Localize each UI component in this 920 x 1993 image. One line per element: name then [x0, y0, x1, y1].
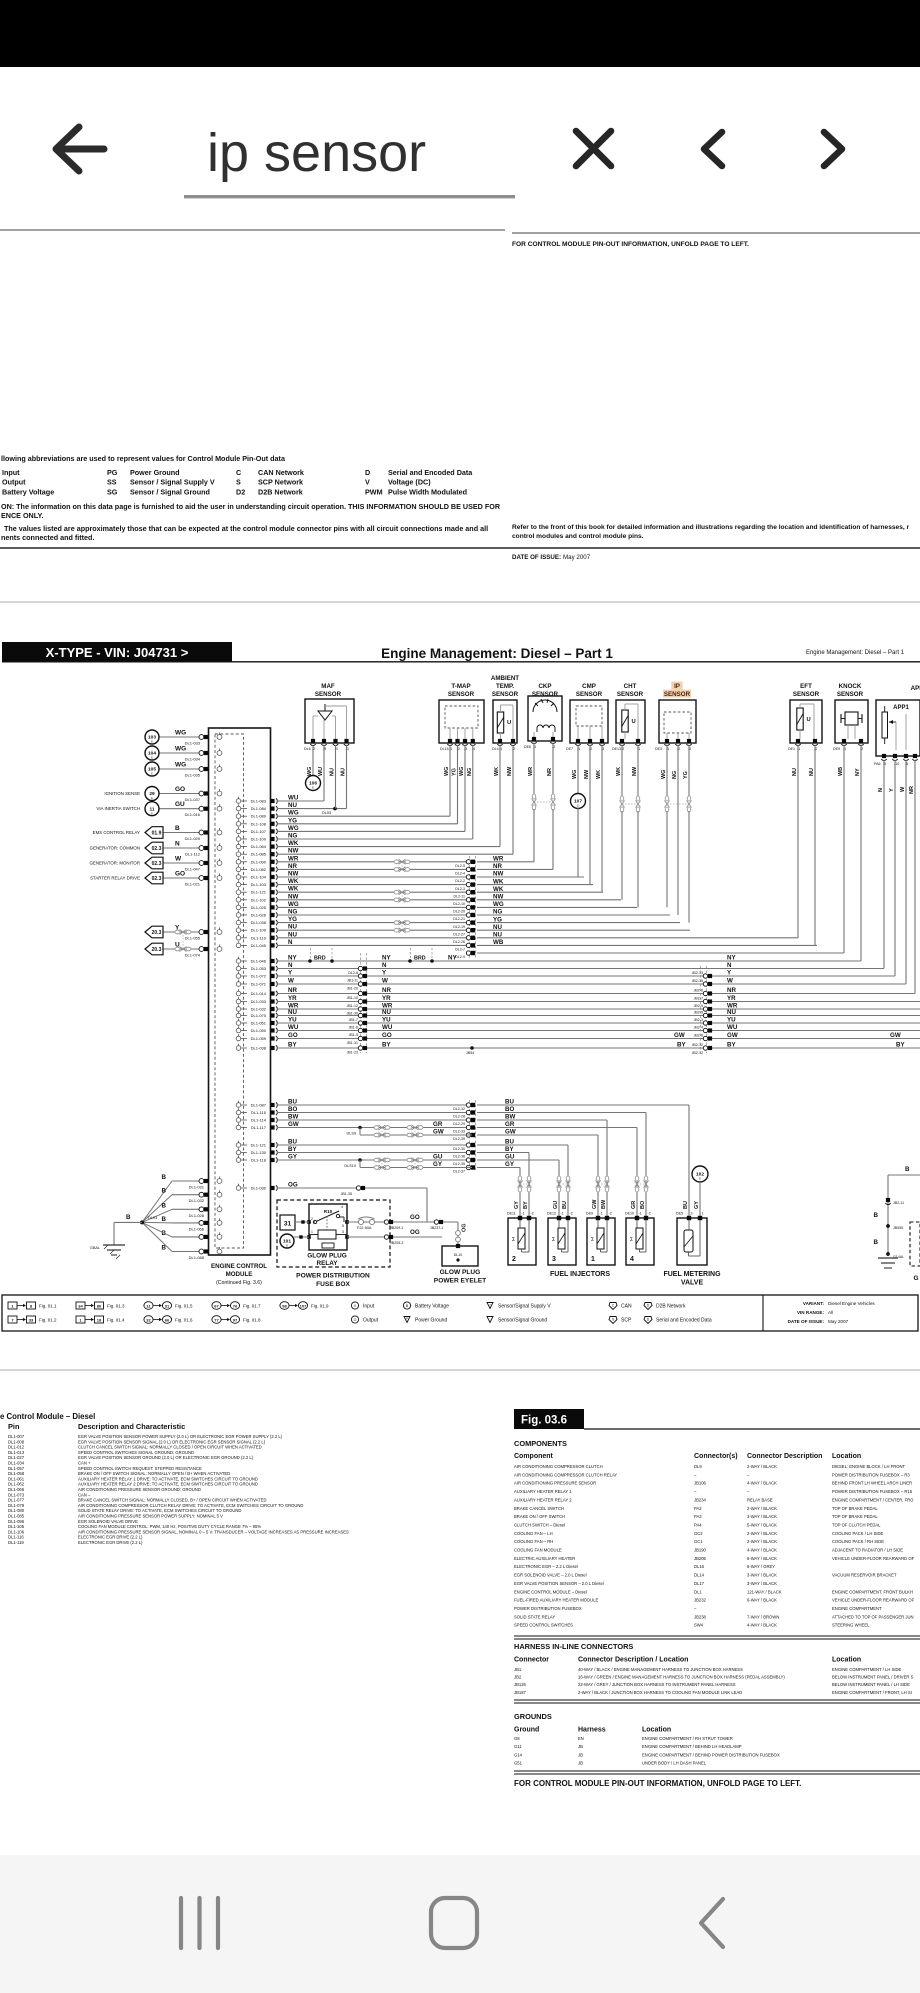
- svg-text:Y: Y: [889, 788, 895, 792]
- svg-text:DL1-077: DL1-077: [8, 1498, 25, 1503]
- svg-text:BRAKE ON / OFF SWITCH: BRAKE ON / OFF SWITCH: [514, 1514, 565, 1519]
- svg-text:GY: GY: [505, 1161, 515, 1168]
- svg-text:PG: PG: [107, 468, 118, 477]
- svg-text:-2: -2: [648, 1212, 651, 1216]
- svg-text:BRD: BRD: [314, 956, 326, 962]
- svg-text:CAN: CAN: [621, 1304, 632, 1310]
- svg-text:BU: BU: [505, 1099, 514, 1106]
- svg-text:SENSOR: SENSOR: [837, 691, 864, 698]
- svg-text:ELECTRIC AUXILIARY HEATER: ELECTRIC AUXILIARY HEATER: [514, 1556, 575, 1561]
- svg-text:1: 1: [79, 1318, 82, 1323]
- svg-text:DL1-064: DL1-064: [251, 844, 267, 849]
- svg-text:VEHICLE UNDER-FLOOR REARWARD O: VEHICLE UNDER-FLOOR REARWARD OF: [832, 1556, 915, 1561]
- svg-text:DE3: DE3: [655, 747, 662, 751]
- svg-text:DLS10: DLS10: [344, 1164, 356, 1168]
- svg-text:FUEL-FIRED AUXILIARY HEATER MO: FUEL-FIRED AUXILIARY HEATER MODULE: [514, 1598, 598, 1603]
- svg-text:DL1-070: DL1-070: [251, 1013, 267, 1018]
- svg-text:D2: D2: [236, 487, 245, 496]
- svg-text:GR: GR: [433, 1121, 443, 1128]
- svg-text:POWER DISTRIBUTION: POWER DISTRIBUTION: [296, 1273, 370, 1280]
- svg-text:JB234: JB234: [694, 1497, 707, 1502]
- svg-text:B: B: [175, 825, 180, 832]
- svg-text:6-WAY / BLACK: 6-WAY / BLACK: [747, 1556, 777, 1561]
- svg-text:SPEED CONTROL SWITCH REQUEST:: SPEED CONTROL SWITCH REQUEST: STEPPED RE…: [78, 1466, 202, 1471]
- svg-text:DL1-117: DL1-117: [251, 1125, 267, 1130]
- svg-text:BU: BU: [683, 1201, 689, 1209]
- svg-text:DL1-110: DL1-110: [251, 935, 267, 940]
- svg-text:AUXILIARY HEATER RELAY 1 DRIVE: AUXILIARY HEATER RELAY 1 DRIVE: TO ACTIV…: [78, 1476, 258, 1481]
- svg-text:NW: NW: [493, 894, 503, 901]
- svg-text:B: B: [162, 1174, 167, 1181]
- svg-text:IGNITION SENSE: IGNITION SENSE: [104, 791, 140, 796]
- svg-text:WK: WK: [494, 767, 500, 776]
- svg-text:BRAKE CANCEL SWITCH SIGNAL: NO: BRAKE CANCEL SWITCH SIGNAL: NORMALLY CLO…: [78, 1498, 267, 1503]
- svg-text:NG: NG: [467, 768, 473, 776]
- svg-text:JB: JB: [578, 1744, 583, 1749]
- svg-text:SENSOR: SENSOR: [492, 691, 519, 698]
- svg-text:DL1-090: DL1-090: [251, 859, 267, 864]
- svg-text:AIR CONDITIONING PRESSURE SENS: AIR CONDITIONING PRESSURE SENSOR: [514, 1481, 596, 1486]
- svg-text:67: 67: [214, 1304, 219, 1309]
- svg-text:Serial and Encoded Data: Serial and Encoded Data: [388, 468, 473, 477]
- svg-text:V: V: [365, 478, 370, 487]
- svg-text:6-WAY / GREY: 6-WAY / GREY: [747, 1564, 775, 1569]
- svg-text:NY: NY: [382, 955, 391, 962]
- svg-text:TOP OF BRAKE PEDAL: TOP OF BRAKE PEDAL: [832, 1506, 878, 1511]
- svg-text:DL1-062: DL1-062: [8, 1482, 25, 1487]
- svg-text:GW: GW: [727, 1032, 738, 1039]
- svg-text:JB: JB: [578, 1752, 583, 1757]
- svg-text:OG: OG: [410, 1229, 420, 1236]
- svg-text:VIA INERTIA SWITCH: VIA INERTIA SWITCH: [96, 806, 140, 811]
- svg-text:77: 77: [214, 1318, 219, 1323]
- svg-text:EN: EN: [578, 1736, 584, 1741]
- svg-text:Input: Input: [2, 468, 20, 477]
- svg-text:JB2-6: JB2-6: [694, 989, 703, 993]
- svg-text:20.3: 20.3: [152, 930, 162, 936]
- svg-text:Ground: Ground: [514, 1727, 539, 1734]
- svg-text:JB2-12: JB2-12: [692, 1043, 703, 1047]
- svg-text:Harness: Harness: [578, 1727, 606, 1734]
- svg-text:BRAKE ON / OFF SWITCH SIGNAL:: BRAKE ON / OFF SWITCH SIGNAL: NORMALLY O…: [78, 1471, 230, 1476]
- svg-text:DL2-37: DL2-37: [453, 1170, 465, 1174]
- svg-text:PWM: PWM: [365, 487, 383, 496]
- svg-text:Fig. 01.7: Fig. 01.7: [243, 1304, 261, 1309]
- svg-text:NY: NY: [448, 955, 457, 962]
- svg-text:SOLID STATE RELAY DRIVE: TO AC: SOLID STATE RELAY DRIVE: TO ACTIVATE, EC…: [78, 1508, 241, 1513]
- svg-text:GW: GW: [433, 1129, 444, 1136]
- svg-text:VEHICLE UNDER-FLOOR REARWARD O: VEHICLE UNDER-FLOOR REARWARD OF: [832, 1598, 915, 1603]
- svg-text:C: C: [236, 468, 241, 477]
- svg-text:1: 1: [311, 1230, 313, 1234]
- svg-text:-1: -1: [639, 1212, 642, 1216]
- svg-text:8: 8: [30, 1304, 33, 1309]
- svg-text:Σ: Σ: [512, 1237, 515, 1243]
- svg-text:JB205-3: JB205-3: [390, 1241, 403, 1245]
- svg-text:DL1-053: DL1-053: [251, 966, 267, 971]
- svg-text:7-WAY / BROWN: 7-WAY / BROWN: [747, 1614, 779, 1619]
- svg-text:ENGINE COMPARTMENT / LH SIDE: ENGINE COMPARTMENT / LH SIDE: [832, 1667, 902, 1672]
- svg-text:E: E: [286, 1244, 288, 1248]
- svg-text:BY: BY: [896, 1042, 905, 1049]
- svg-text:97: 97: [233, 1318, 238, 1323]
- svg-text:JB209-1: JB209-1: [390, 1226, 403, 1230]
- svg-text:WG: WG: [175, 762, 186, 769]
- svg-text:Component: Component: [514, 1453, 554, 1460]
- svg-text:PA4: PA4: [694, 1522, 702, 1527]
- svg-text:DLS9: DLS9: [347, 1132, 357, 1136]
- svg-text:DL1-074: DL1-074: [185, 953, 201, 958]
- svg-text:WR: WR: [493, 856, 504, 863]
- svg-text:F22 80A: F22 80A: [357, 1226, 372, 1230]
- svg-text:80: 80: [97, 1304, 102, 1309]
- svg-text:U: U: [507, 720, 511, 726]
- svg-text:DL1: DL1: [694, 1589, 702, 1594]
- svg-text:DL1-080: DL1-080: [8, 1508, 25, 1513]
- svg-text:WB: WB: [838, 767, 844, 776]
- svg-text:G: G: [913, 1275, 918, 1282]
- svg-text:BW: BW: [601, 1199, 607, 1209]
- svg-text:BY: BY: [382, 1042, 391, 1049]
- svg-text:Input: Input: [363, 1304, 375, 1310]
- svg-text:GR: GR: [505, 1121, 515, 1128]
- svg-text:NW: NW: [493, 871, 503, 878]
- svg-text:VARIANT:: VARIANT:: [803, 1301, 825, 1306]
- svg-text:WG: WG: [444, 767, 450, 776]
- svg-text:COMPONENTS: COMPONENTS: [514, 1439, 567, 1448]
- svg-text:DL2-28: DL2-28: [453, 1115, 465, 1119]
- svg-text:AIR CONDITIONING COMPRESSOR CL: AIR CONDITIONING COMPRESSOR CLUTCH RELAY…: [78, 1503, 303, 1508]
- svg-text:Fig. 01.1: Fig. 01.1: [39, 1304, 57, 1309]
- svg-text:DL1-071: DL1-071: [251, 982, 267, 987]
- svg-text:AUXILIARY HEATER RELAY 2 DRIVE: AUXILIARY HEATER RELAY 2 DRIVE: TO ACTIV…: [78, 1482, 258, 1487]
- svg-text:–: –: [747, 1472, 750, 1477]
- svg-text:JB2-5: JB2-5: [694, 1011, 703, 1015]
- svg-text:T-MAP: T-MAP: [451, 683, 470, 690]
- svg-text:DL1-008: DL1-008: [8, 1439, 25, 1444]
- svg-text:nents connected and fitted.: nents connected and fitted.: [1, 533, 94, 542]
- svg-text:WR: WR: [528, 767, 534, 776]
- svg-text:–: –: [694, 1606, 697, 1611]
- svg-text:JB2: JB2: [514, 1675, 522, 1680]
- svg-text:BRAKE CANCEL SWITCH: BRAKE CANCEL SWITCH: [514, 1506, 564, 1511]
- svg-text:DL2-27: DL2-27: [453, 932, 465, 936]
- svg-text:DL2-9: DL2-9: [455, 955, 465, 959]
- svg-text:Output: Output: [2, 478, 26, 487]
- svg-text:SENSOR: SENSOR: [315, 691, 342, 698]
- svg-text:DL1-118: DL1-118: [251, 1158, 267, 1163]
- svg-text:HARNESS IN-LINE CONNECTORS: HARNESS IN-LINE CONNECTORS: [514, 1642, 633, 1651]
- svg-text:JB1-10: JB1-10: [347, 996, 358, 1000]
- svg-text:TEMP.: TEMP.: [496, 683, 514, 690]
- svg-text:BY: BY: [727, 1042, 736, 1049]
- svg-text:02.3: 02.3: [152, 876, 162, 882]
- svg-text:BY: BY: [523, 1201, 529, 1209]
- svg-text:B: B: [162, 1202, 167, 1209]
- svg-text:DL2-19: DL2-19: [453, 925, 465, 929]
- svg-text:DL1-016: DL1-016: [185, 812, 201, 817]
- svg-text:X-TYPE - VIN: J04731 >: X-TYPE - VIN: J04731 >: [46, 645, 189, 660]
- svg-text:COOLING FAN MODULE CONTROL: PW: COOLING FAN MODULE CONTROL: PWM, 140 Hz,…: [78, 1524, 261, 1529]
- svg-text:CHT: CHT: [624, 683, 637, 690]
- svg-text:YG: YG: [683, 771, 689, 779]
- svg-text:DL1-036: DL1-036: [251, 920, 267, 925]
- svg-text:JB1-11: JB1-11: [347, 979, 358, 983]
- svg-text:DL1-051: DL1-051: [251, 1021, 267, 1026]
- svg-text:DL1-057: DL1-057: [8, 1466, 25, 1471]
- svg-text:WG: WG: [175, 746, 186, 753]
- svg-text:VIN RANGE:: VIN RANGE:: [797, 1310, 825, 1315]
- svg-text:DL1-034: DL1-034: [185, 757, 201, 762]
- svg-text:JB232: JB232: [694, 1598, 707, 1603]
- svg-text:P: P: [406, 1316, 408, 1320]
- svg-text:APP1: APP1: [893, 705, 909, 711]
- svg-text:1: 1: [702, 1212, 704, 1216]
- svg-text:DL1-104: DL1-104: [251, 875, 267, 880]
- svg-text:DL1-100: DL1-100: [251, 837, 267, 842]
- svg-text:–: –: [747, 1489, 750, 1494]
- svg-text:GW: GW: [890, 1032, 901, 1039]
- svg-text:NR: NR: [727, 987, 736, 994]
- svg-text:DL1-085: DL1-085: [8, 1514, 25, 1519]
- svg-text:DL1-106: DL1-106: [8, 1529, 25, 1534]
- svg-text:RELAY BASE: RELAY BASE: [747, 1497, 773, 1502]
- svg-text:31: 31: [165, 1304, 170, 1309]
- svg-text:WG: WG: [493, 901, 504, 908]
- svg-text:e Control Module – Diesel: e Control Module – Diesel: [0, 1412, 95, 1421]
- svg-text:DL2-11: DL2-11: [453, 894, 465, 898]
- svg-text:ELECTRONIC EGR – 2.2 L Diesel: ELECTRONIC EGR – 2.2 L Diesel: [514, 1564, 578, 1569]
- svg-text:SENSOR: SENSOR: [448, 691, 475, 698]
- svg-text:G51: G51: [514, 1761, 523, 1766]
- svg-text:FUEL METERING: FUEL METERING: [663, 1271, 721, 1278]
- svg-text:YU: YU: [382, 1017, 391, 1024]
- svg-text:POWER DISTRIBUTION FUSEBOX – R: POWER DISTRIBUTION FUSEBOX – R15: [832, 1489, 913, 1494]
- svg-text:B: B: [162, 1188, 167, 1195]
- svg-text:DE5: DE5: [676, 1212, 683, 1216]
- svg-text:N: N: [175, 841, 180, 848]
- svg-text:–: –: [694, 1472, 697, 1477]
- svg-text:DL2-21: DL2-21: [453, 917, 465, 921]
- svg-text:E: E: [312, 786, 314, 790]
- svg-text:3: 3: [342, 1230, 344, 1234]
- svg-text:DL1-073: DL1-073: [8, 1492, 25, 1497]
- svg-text:BEHIND FRONT LH WHEEL ARCH LIN: BEHIND FRONT LH WHEEL ARCH LINER: [832, 1481, 912, 1486]
- svg-text:4: 4: [630, 1256, 634, 1263]
- svg-text:WU: WU: [318, 767, 324, 776]
- svg-text:ip sensor: ip sensor: [207, 123, 426, 183]
- svg-text:POWER DISTRIBUTION FUSEBOX – R: POWER DISTRIBUTION FUSEBOX – R3: [832, 1472, 910, 1477]
- svg-text:DL6: DL6: [304, 747, 311, 751]
- svg-text:GY: GY: [433, 1161, 443, 1168]
- svg-text:DE9: DE9: [586, 1212, 593, 1216]
- svg-text:SS: SS: [107, 478, 117, 487]
- svg-text:DL53: DL53: [322, 811, 331, 815]
- svg-text:JB2-9: JB2-9: [694, 1004, 703, 1008]
- svg-text:DL2-29: DL2-29: [453, 1122, 465, 1126]
- svg-text:JB2-12: JB2-12: [692, 1051, 703, 1055]
- svg-text:JB2-6: JB2-6: [694, 1034, 703, 1038]
- svg-text:DL16: DL16: [694, 1564, 705, 1569]
- svg-text:DL4: DL4: [492, 747, 499, 751]
- svg-text:NR: NR: [493, 863, 502, 870]
- svg-text:DE9: DE9: [833, 747, 840, 751]
- svg-text:WG: WG: [459, 767, 465, 776]
- svg-text:2: 2: [512, 1256, 516, 1263]
- svg-text:Fig. 01.2: Fig. 01.2: [39, 1318, 57, 1323]
- svg-text:33: 33: [29, 1318, 34, 1323]
- svg-text:DL1-035: DL1-035: [185, 773, 201, 778]
- svg-text:EGR SOLENOID VALVE DRIVE: EGR SOLENOID VALVE DRIVE: [78, 1519, 138, 1524]
- svg-text:DL2-8: DL2-8: [348, 971, 358, 975]
- svg-text:GY: GY: [514, 1201, 520, 1209]
- svg-text:MAF: MAF: [321, 683, 335, 690]
- svg-text:+: +: [489, 1302, 491, 1306]
- svg-text:JB1-12: JB1-12: [347, 1004, 358, 1008]
- svg-text:E: E: [151, 740, 153, 744]
- svg-text:WG: WG: [307, 767, 313, 776]
- svg-text:DL2-20: DL2-20: [453, 910, 465, 914]
- svg-text:DL1-007: DL1-007: [8, 1434, 25, 1439]
- svg-text:W: W: [727, 978, 733, 985]
- svg-text:POWER EYELET: POWER EYELET: [434, 1278, 486, 1285]
- svg-text:E: E: [151, 811, 153, 815]
- svg-text:DL1-033: DL1-033: [251, 999, 267, 1004]
- svg-text:WU: WU: [382, 1024, 393, 1031]
- svg-text:Description and Characteristic: Description and Characteristic: [78, 1422, 185, 1431]
- svg-text:2-: 2-: [691, 1212, 695, 1216]
- svg-text:Connector Description / Locati: Connector Description / Location: [578, 1657, 688, 1664]
- svg-text:WU: WU: [727, 1024, 738, 1031]
- svg-text:E: E: [151, 756, 153, 760]
- svg-text:SENSOR: SENSOR: [532, 691, 559, 698]
- svg-text:ENGINE COMPARTMENT / BEHIND PO: ENGINE COMPARTMENT / BEHIND POWER DISTRI…: [642, 1752, 780, 1757]
- svg-text:NG: NG: [672, 771, 678, 779]
- svg-text:ENGINE CONTROL: ENGINE CONTROL: [211, 1263, 267, 1270]
- svg-text:SPEED CONTROL SWITCHES: SPEED CONTROL SWITCHES: [514, 1623, 573, 1628]
- svg-text:2-WAY / BLACK: 2-WAY / BLACK: [747, 1531, 777, 1536]
- svg-text:66: 66: [165, 1318, 170, 1323]
- svg-text:POWER DISTRIBUTION FUSEBOX: POWER DISTRIBUTION FUSEBOX: [514, 1606, 582, 1611]
- svg-text:2-WAY / BLACK / JUNCTION BOX H: 2-WAY / BLACK / JUNCTION BOX HARNESS TO …: [578, 1690, 742, 1695]
- svg-text:DL1-115: DL1-115: [251, 1110, 267, 1115]
- svg-text:D2B Network: D2B Network: [258, 487, 303, 496]
- svg-text:20.3: 20.3: [152, 947, 162, 953]
- svg-text:CLUTCH SWITCH – Diesel: CLUTCH SWITCH – Diesel: [514, 1522, 565, 1527]
- svg-text:DL1-030: DL1-030: [251, 1186, 267, 1191]
- svg-text:Connector Description: Connector Description: [747, 1453, 822, 1460]
- svg-text:DIESEL: ENGINE BLOCK / LH FRON: DIESEL: ENGINE BLOCK / LH FRONT: [832, 1464, 906, 1469]
- svg-text:STEERING WHEEL: STEERING WHEEL: [832, 1623, 870, 1628]
- svg-text:May 2007: May 2007: [563, 554, 591, 561]
- svg-text:DL1-014: DL1-014: [251, 991, 267, 996]
- svg-text:DL2-35: DL2-35: [453, 1162, 465, 1166]
- svg-text:ENGINE COMPARTMENT, FRONT BULK: ENGINE COMPARTMENT, FRONT BULKH: [832, 1589, 913, 1594]
- svg-text:WB: WB: [493, 939, 504, 946]
- svg-text:RELAY: RELAY: [316, 1260, 338, 1267]
- svg-text:DL1-055: DL1-055: [185, 936, 201, 941]
- svg-text:5: 5: [342, 1224, 344, 1228]
- svg-text:GLOW PLUG: GLOW PLUG: [307, 1253, 346, 1260]
- svg-text:DE1: DE1: [788, 747, 795, 751]
- svg-text:DL1-029: DL1-029: [185, 836, 201, 841]
- svg-text:SCP: SCP: [621, 1318, 632, 1324]
- svg-text:JB1-5: JB1-5: [349, 1033, 358, 1037]
- svg-text:22-WAY / GREY / JUNCTION BOX H: 22-WAY / GREY / JUNCTION BOX HARNESS TO …: [578, 1682, 736, 1687]
- svg-text:DL14: DL14: [694, 1573, 705, 1578]
- svg-text:SENSOR: SENSOR: [576, 691, 603, 698]
- svg-text:AIR CONDITIONING PRESSURE SENS: AIR CONDITIONING PRESSURE SENSOR POWER S…: [78, 1514, 223, 1519]
- svg-text:YR: YR: [382, 995, 391, 1002]
- svg-text:ON: The information on this da: ON: The information on this data page is…: [1, 502, 501, 511]
- svg-text:NU: NU: [727, 1009, 736, 1016]
- svg-text:-2: -2: [570, 1212, 573, 1216]
- svg-text:W: W: [900, 786, 906, 792]
- svg-text:N: N: [878, 788, 884, 792]
- svg-text:4-WAY / BLACK: 4-WAY / BLACK: [747, 1481, 777, 1486]
- svg-text:BO: BO: [505, 1106, 514, 1113]
- svg-text:FOR CONTROL MODULE PIN-OUT INF: FOR CONTROL MODULE PIN-OUT INFORMATION, …: [514, 1779, 801, 1788]
- svg-text:Output: Output: [363, 1318, 379, 1324]
- svg-text:TOP OF CLUTCH PEDAL: TOP OF CLUTCH PEDAL: [832, 1522, 881, 1527]
- svg-text:BO: BO: [640, 1200, 646, 1209]
- svg-text:DL1-107: DL1-107: [251, 829, 267, 834]
- svg-text:B: B: [874, 1239, 879, 1246]
- svg-text:SOLID STATE RELAY: SOLID STATE RELAY: [514, 1614, 555, 1619]
- svg-text:DE6: DE6: [524, 745, 531, 749]
- svg-text:Sensor/Signal Supply V: Sensor/Signal Supply V: [498, 1304, 551, 1310]
- svg-text:AIR CONDITIONING COMPRESSOR CL: AIR CONDITIONING COMPRESSOR CLUTCH RELAY: [514, 1472, 617, 1477]
- svg-text:DL1-012: DL1-012: [8, 1445, 25, 1450]
- svg-text:DL1-087: DL1-087: [251, 1103, 267, 1108]
- svg-text:NR: NR: [547, 768, 553, 776]
- svg-text:ADJACENT TO RADIATOR / LH SIDE: ADJACENT TO RADIATOR / LH SIDE: [832, 1548, 903, 1553]
- svg-text:IP: IP: [674, 683, 680, 690]
- svg-text:DL9: DL9: [694, 1464, 702, 1469]
- svg-text:DE7: DE7: [566, 747, 573, 751]
- svg-text:EGR VALVE POSITION SENSOR – 2.: EGR VALVE POSITION SENSOR – 2.0 L Diesel: [514, 1581, 604, 1586]
- svg-text:E: E: [577, 804, 579, 808]
- svg-text:2-WAY / BLACK: 2-WAY / BLACK: [747, 1506, 777, 1511]
- svg-text:EFT: EFT: [800, 683, 812, 690]
- svg-text:02.3: 02.3: [152, 846, 162, 852]
- svg-text:JB238: JB238: [694, 1614, 707, 1619]
- svg-text:GLOW PLUG: GLOW PLUG: [440, 1269, 481, 1276]
- svg-text:GC2: GC2: [694, 1531, 703, 1536]
- svg-text:DL1-084: DL1-084: [251, 806, 267, 811]
- svg-text:ATTACHED TO TOP OF PASSENGER J: ATTACHED TO TOP OF PASSENGER JUN: [832, 1614, 914, 1619]
- svg-text:BELOW INSTRUMENT PANEL / LH SI: BELOW INSTRUMENT PANEL / LH SIDE: [832, 1682, 910, 1687]
- svg-text:DL2-3: DL2-3: [455, 887, 465, 891]
- svg-text:JB1-23: JB1-23: [347, 1051, 358, 1055]
- svg-text:UNDER BODY / LH DASH PANEL: UNDER BODY / LH DASH PANEL: [642, 1761, 707, 1766]
- svg-text:JB2-3: JB2-3: [694, 1018, 703, 1022]
- svg-text:GU: GU: [433, 1154, 443, 1161]
- svg-text:Engine Management: Diesel – Pa: Engine Management: Diesel – Part 1: [806, 650, 905, 656]
- svg-text:NY: NY: [855, 768, 861, 776]
- svg-text:COOLING FAN – LH: COOLING FAN – LH: [514, 1531, 553, 1536]
- svg-text:S: S: [236, 478, 241, 487]
- svg-text:Fig. 01.6: Fig. 01.6: [175, 1318, 193, 1323]
- svg-text:B: B: [162, 1216, 167, 1223]
- svg-text:GR: GR: [631, 1201, 637, 1209]
- svg-text:JB1: JB1: [514, 1667, 522, 1672]
- svg-text:DL1-112: DL1-112: [185, 852, 201, 857]
- svg-text:DL1-045: DL1-045: [251, 943, 267, 948]
- svg-text:JB1-20: JB1-20: [347, 987, 358, 991]
- svg-text:2-WAY / BLACK: 2-WAY / BLACK: [747, 1539, 777, 1544]
- svg-text:DL1-116: DL1-116: [8, 1535, 24, 1540]
